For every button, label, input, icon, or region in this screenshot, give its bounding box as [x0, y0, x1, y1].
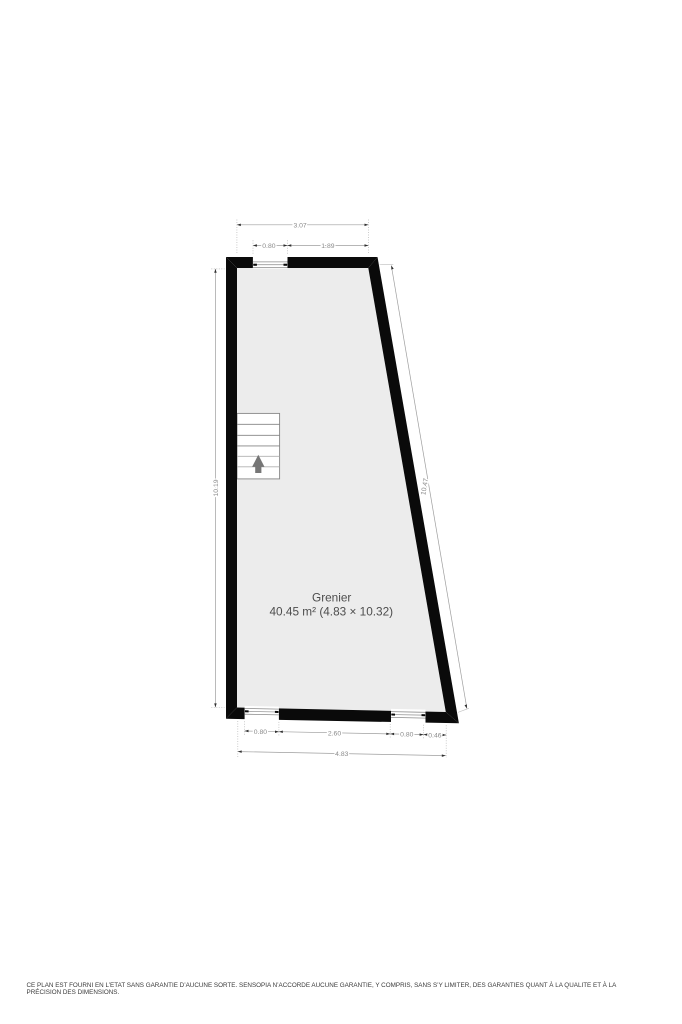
svg-text:CE PLAN EST FOURNI EN L’ETAT S: CE PLAN EST FOURNI EN L’ETAT SANS GARANT…: [27, 980, 618, 989]
svg-text:0.80: 0.80: [262, 243, 275, 250]
svg-text:0.46: 0.46: [428, 732, 441, 739]
svg-text:2.60: 2.60: [328, 730, 341, 737]
svg-text:PRÉCISION DES DIMENSIONS.: PRÉCISION DES DIMENSIONS.: [27, 987, 120, 996]
svg-text:1.89: 1.89: [321, 243, 334, 250]
svg-text:0.80: 0.80: [254, 729, 267, 736]
svg-text:10.47: 10.47: [420, 478, 430, 496]
svg-text:4.83: 4.83: [335, 751, 348, 758]
svg-text:40.45 m² (4.83 × 10.32): 40.45 m² (4.83 × 10.32): [269, 604, 393, 618]
svg-text:0.80: 0.80: [400, 732, 413, 739]
svg-text:Grenier: Grenier: [312, 591, 351, 605]
svg-text:10.19: 10.19: [213, 479, 220, 496]
svg-text:3.07: 3.07: [293, 222, 306, 229]
